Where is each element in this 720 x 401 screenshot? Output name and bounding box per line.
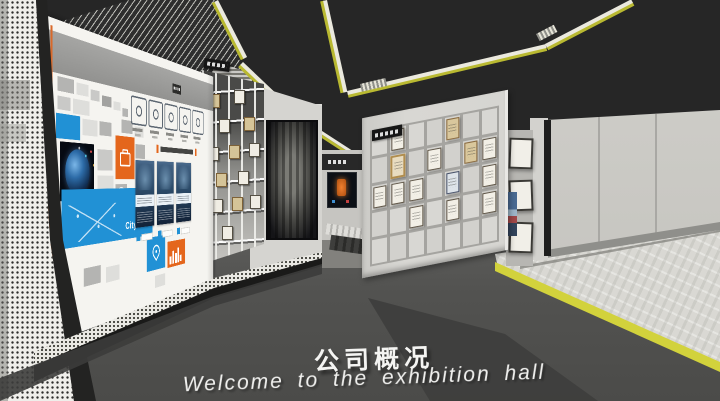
card-text-lines [178,208,190,219]
lattice-cell [427,227,442,254]
icon-caption-bar [135,134,141,137]
board-edge-shading [207,74,213,285]
lattice-cell [482,108,497,135]
icon-caption-bar [168,138,173,141]
info-card [135,160,154,228]
lattice-cell [445,142,460,169]
award-icon [131,95,147,127]
lattice-cell [482,135,497,162]
card-caption-bar [135,195,154,208]
certificate-frame [508,138,533,170]
certificate-frame [428,147,441,170]
certificate-frame [483,164,496,187]
lattice-cell [445,223,460,250]
icon-caption-bar [182,140,186,143]
section-tag [173,83,181,95]
lattice-cell [409,203,424,230]
exhibition-hall-scene: Citylast 公司概况 Welcome to the exhibition [0,0,720,401]
lattice-cell [463,112,478,139]
handshake-icon [148,99,162,129]
doorway-gap [544,120,551,256]
card-text-lines [159,209,173,221]
info-card [176,162,191,222]
certificate-frame [446,117,459,140]
lattice-cell [390,153,405,180]
lattice-cell [390,207,405,234]
lattice-cell [372,237,387,264]
icon-caption-bar [194,136,201,140]
certificate-frame [390,153,405,179]
card-link-chip [177,225,190,235]
heading-accent [157,145,159,153]
icon-caption-bar [133,128,143,133]
heading-text-bar [161,147,193,155]
certificate-frame [483,137,496,160]
lattice-cell [427,200,442,227]
certificate-frame [373,185,386,208]
lattice-cell [372,210,387,237]
icon-caption-bar [180,135,187,139]
lattice-cell [390,180,405,207]
card-link-chip [158,228,172,238]
lattice-cell [409,230,424,257]
perforated-wall-patch [0,124,26,142]
lattice-cell [390,234,405,261]
card-caption-bar [176,193,191,204]
lattice-cell [445,196,460,223]
certificate-frame [446,198,459,221]
lattice-cell [463,193,478,220]
lattice-cell [372,183,387,210]
lattice-cell [427,173,442,200]
info-card [157,161,174,225]
lattice-cell [445,169,460,196]
lattice-cell [482,162,497,189]
card-text-lines [137,211,152,224]
icon-caption-bar [166,132,174,136]
certificate-frame [410,178,423,201]
lattice-cell [445,115,460,142]
lattice-cell [482,216,497,243]
certificate-frame [446,171,459,194]
honor-sign-glyphs [375,129,399,138]
trophy-icon [192,109,203,135]
lattice-cell [482,189,497,216]
certificate-frame [410,205,423,228]
icon-caption-bar [195,141,199,143]
lattice-cell [372,156,387,183]
bulb-icon [164,103,177,131]
ceiling-light-strip [545,0,633,48]
section-tag-glyphs [174,86,180,91]
lattice-cell [463,139,478,166]
lattice-cell [427,146,442,173]
lattice-cell [409,122,424,149]
lattice-cell [427,119,442,146]
lattice-cell [409,149,424,176]
certificate-frame [391,182,404,205]
lattice-cell [463,220,478,247]
perforated-wall-patch [0,80,30,110]
card-caption-bar [157,194,174,206]
certificate-frame [464,140,477,163]
icon-caption-bar [152,136,157,139]
lattice-cell [463,166,478,193]
side-poster [507,192,517,236]
card-link-chip [136,231,152,242]
certificate-frame [483,191,496,214]
honor-certificate-wall [362,90,508,278]
icon-caption-bar [150,130,159,134]
chart-icon [179,106,191,133]
heading-accent [195,149,197,156]
lattice-cell [409,176,424,203]
